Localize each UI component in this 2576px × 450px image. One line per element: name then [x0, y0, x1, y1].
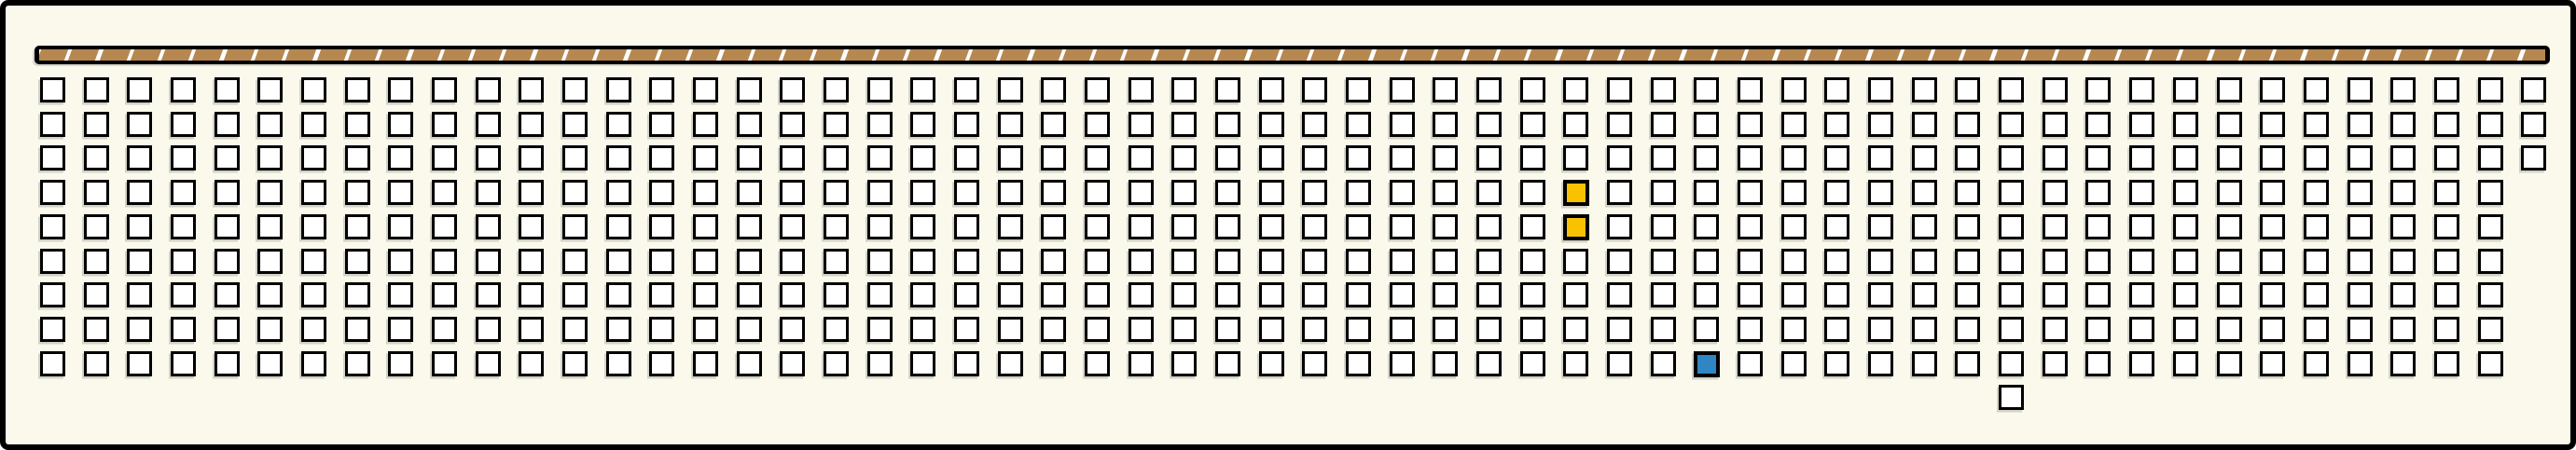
grid-cell [1259, 77, 1284, 102]
grid-cell [84, 282, 109, 307]
grid-cell [215, 317, 240, 342]
grid-cell [2434, 180, 2459, 205]
grid-cell [257, 112, 283, 137]
grid-cell [1041, 112, 1066, 137]
bar-slat [1590, 49, 1621, 61]
grid-cell [1390, 77, 1415, 102]
grid-cell [1738, 112, 1763, 137]
grid-cell [693, 249, 718, 274]
grid-cell [562, 249, 588, 274]
grid-cell [1563, 282, 1588, 307]
grid-cell [737, 351, 762, 376]
board [0, 0, 2576, 450]
grid-cell [1781, 77, 1807, 102]
grid-cell [1041, 282, 1066, 307]
grid-cell [301, 180, 326, 205]
grid-cell [388, 77, 413, 102]
bar-slat [596, 49, 627, 61]
grid-cell [257, 249, 283, 274]
grid-cell [1085, 180, 1110, 205]
grid-cell [1129, 214, 1154, 239]
grid-cell [562, 214, 588, 239]
bar-slat [224, 49, 255, 61]
grid-cell [215, 214, 240, 239]
grid-cell [432, 77, 457, 102]
bar-slat [1217, 49, 1248, 61]
grid-cell [910, 180, 935, 205]
bar-slat [1124, 49, 1155, 61]
grid-cell [2173, 351, 2198, 376]
grid-cell [1781, 214, 1807, 239]
grid-cell [562, 282, 588, 307]
bar-slat [1807, 49, 1838, 61]
grid-cell [1868, 214, 1893, 239]
grid-cell [84, 180, 109, 205]
grid-cell [2173, 112, 2198, 137]
grid-cell [1259, 282, 1284, 307]
grid-cell [998, 77, 1023, 102]
grid-cell [1215, 145, 1240, 170]
grid-cell [1085, 77, 1110, 102]
grid-cell [301, 145, 326, 170]
bar-slat [2211, 49, 2242, 61]
grid-cell [2304, 180, 2329, 205]
grid-cell [2478, 145, 2503, 170]
grid-cell [1563, 112, 1588, 137]
grid-cell [998, 180, 1023, 205]
grid-cell [867, 249, 893, 274]
grid-cell [1433, 317, 1458, 342]
grid-cell [84, 351, 109, 376]
bar-slat [2273, 49, 2304, 61]
grid-cell [40, 317, 65, 342]
grid-cell [2390, 351, 2416, 376]
grid-cell [345, 180, 370, 205]
grid-cell [1215, 77, 1240, 102]
grid-cell [737, 282, 762, 307]
grid-cell [954, 282, 979, 307]
grid-cell [1171, 317, 1197, 342]
grid-cell [1824, 249, 1849, 274]
bar-slat [2490, 49, 2521, 61]
grid-cell [1607, 145, 1632, 170]
grid-cell [2434, 351, 2459, 376]
bar-slat [2397, 49, 2428, 61]
grid-cell [301, 77, 326, 102]
bar-slat [565, 49, 596, 61]
grid-cell [215, 112, 240, 137]
grid-cell [2173, 77, 2198, 102]
grid-cell [2043, 351, 2068, 376]
bar-slat [1745, 49, 1776, 61]
grid-cell [40, 77, 65, 102]
grid-cell [1476, 317, 1502, 342]
grid-cell [2173, 145, 2198, 170]
grid-cell [824, 77, 849, 102]
grid-cell [1607, 317, 1632, 342]
grid-cell [1346, 180, 1371, 205]
grid-cell [1955, 77, 1980, 102]
grid-cell [476, 145, 501, 170]
grid-cell [1433, 249, 1458, 274]
grid-cell [1476, 282, 1502, 307]
grid-cell [780, 249, 805, 274]
grid-cell [519, 317, 544, 342]
grid-cell [1563, 249, 1588, 274]
grid-cell [2304, 77, 2329, 102]
grid-cell [998, 112, 1023, 137]
grid-cell [998, 351, 1023, 376]
grid-cell-yellow [1563, 180, 1589, 206]
bar-slat [2522, 49, 2545, 61]
grid-cell [1085, 317, 1110, 342]
grid-cell [1607, 77, 1632, 102]
grid-cell [1651, 282, 1676, 307]
bar-slat [658, 49, 689, 61]
grid-cell [301, 317, 326, 342]
grid-cell [1302, 282, 1327, 307]
grid-cell [301, 249, 326, 274]
grid-cell [737, 180, 762, 205]
grid-cell [1041, 317, 1066, 342]
grid-cell [40, 214, 65, 239]
grid-cell [867, 112, 893, 137]
grid-cell [1346, 282, 1371, 307]
grid-cell [127, 112, 152, 137]
bar-slat [192, 49, 223, 61]
grid-cell [84, 77, 109, 102]
grid-cell [1694, 214, 1719, 239]
grid-cell [257, 77, 283, 102]
grid-cell [2304, 112, 2329, 137]
grid-cell [954, 77, 979, 102]
grid-cell [301, 112, 326, 137]
grid-cell [562, 77, 588, 102]
grid-cell [1346, 214, 1371, 239]
bar-slat [503, 49, 533, 61]
grid-cell [1390, 351, 1415, 376]
grid-cell [954, 249, 979, 274]
grid-cell [1476, 77, 1502, 102]
grid-cell [1215, 112, 1240, 137]
bar-slat [1156, 49, 1186, 61]
grid-cell [1215, 249, 1240, 274]
grid-cell [2129, 351, 2154, 376]
grid-cell [127, 282, 152, 307]
grid-cell [2173, 249, 2198, 274]
grid-cell [1129, 112, 1154, 137]
grid-cell [910, 214, 935, 239]
grid-cell [1129, 77, 1154, 102]
bar-slat [2118, 49, 2149, 61]
bar-slat [1714, 49, 1745, 61]
grid-cell [2217, 145, 2242, 170]
grid-cell [388, 214, 413, 239]
grid-cell [171, 112, 196, 137]
grid-cell [1955, 214, 1980, 239]
grid-cell [84, 145, 109, 170]
grid-cell [432, 351, 457, 376]
grid-cell [2521, 77, 2546, 102]
grid-cell [519, 249, 544, 274]
grid-cell-blue [1694, 351, 1720, 377]
slat-band [39, 49, 2545, 61]
grid-cell [1651, 214, 1676, 239]
grid-cell [910, 112, 935, 137]
bar-slat [1776, 49, 1807, 61]
grid-cell [345, 145, 370, 170]
grid-cell [1520, 180, 1545, 205]
bar-slat [1497, 49, 1528, 61]
grid-cell [1346, 145, 1371, 170]
grid-cell [1607, 282, 1632, 307]
grid-cell [519, 214, 544, 239]
grid-cell [649, 145, 674, 170]
grid-cell [1824, 351, 1849, 376]
grid-cell [649, 282, 674, 307]
grid-cell [1999, 249, 2024, 274]
grid-cell [1041, 214, 1066, 239]
grid-cell [1563, 77, 1588, 102]
grid-cell [2347, 249, 2373, 274]
grid-cell [476, 351, 501, 376]
grid-cell [1302, 249, 1327, 274]
bar-slat [937, 49, 968, 61]
grid-cell [84, 317, 109, 342]
grid-cell [345, 214, 370, 239]
grid-cell [1129, 351, 1154, 376]
grid-cell [1912, 249, 1937, 274]
bar-slat [2335, 49, 2366, 61]
grid-cell [1781, 282, 1807, 307]
grid-cell [127, 351, 152, 376]
bar-slat [1558, 49, 1589, 61]
grid-cell [2217, 351, 2242, 376]
grid-cell [1955, 112, 1980, 137]
grid-cell [171, 282, 196, 307]
grid-cell [1259, 249, 1284, 274]
grid-cell [1129, 249, 1154, 274]
grid-cell [2390, 282, 2416, 307]
bar-slat [1404, 49, 1434, 61]
grid-cell [1215, 282, 1240, 307]
grid-cell [2347, 180, 2373, 205]
grid-cell [1824, 180, 1849, 205]
bar-slat [1962, 49, 1993, 61]
grid-cell [257, 180, 283, 205]
grid-cell [1694, 317, 1719, 342]
grid-cell [1259, 145, 1284, 170]
grid-cell [2390, 180, 2416, 205]
grid-cell [780, 180, 805, 205]
bar-slat [1062, 49, 1093, 61]
grid-cell [2043, 317, 2068, 342]
grid-cell [1390, 145, 1415, 170]
grid-cell [2347, 351, 2373, 376]
grid-cell [2478, 77, 2503, 102]
grid-cell [780, 112, 805, 137]
bar-slat [2180, 49, 2210, 61]
grid-cell [1302, 180, 1327, 205]
bar-slat [99, 49, 130, 61]
grid-cell [1302, 145, 1327, 170]
grid-cell [2434, 249, 2459, 274]
grid-cell [257, 282, 283, 307]
grid-cell [1999, 351, 2024, 376]
grid-cell [1302, 351, 1327, 376]
grid-cell [2347, 112, 2373, 137]
grid-cell [432, 112, 457, 137]
grid-cell [1694, 145, 1719, 170]
grid-cell [388, 351, 413, 376]
grid-cell [2434, 214, 2459, 239]
grid-cell [1868, 282, 1893, 307]
grid-cell [1738, 282, 1763, 307]
grid-cell [2085, 317, 2111, 342]
grid-cell [2347, 214, 2373, 239]
grid-cell [301, 351, 326, 376]
grid-cell [2434, 317, 2459, 342]
grid-cell [693, 351, 718, 376]
grid-cell [2390, 112, 2416, 137]
bar-slat [348, 49, 379, 61]
bar-slat [782, 49, 813, 61]
grid-cell [954, 145, 979, 170]
bar-slat [1373, 49, 1404, 61]
grid-cell [562, 317, 588, 342]
grid-cell [2304, 351, 2329, 376]
grid-cell [693, 180, 718, 205]
grid-cell [2129, 282, 2154, 307]
grid-cell [606, 351, 631, 376]
grid-cell [693, 317, 718, 342]
grid-cell [1781, 317, 1807, 342]
grid-cell [649, 351, 674, 376]
grid-cell [127, 317, 152, 342]
grid-cell [2478, 249, 2503, 274]
grid-cell [1085, 249, 1110, 274]
grid-cell [693, 145, 718, 170]
grid-cell [476, 249, 501, 274]
grid-cell [1171, 249, 1197, 274]
grid-cell [1999, 77, 2024, 102]
grid-cell [1912, 351, 1937, 376]
grid-cell [2390, 145, 2416, 170]
grid-cell [2085, 214, 2111, 239]
grid-cell [40, 249, 65, 274]
grid-cell [1085, 145, 1110, 170]
grid-cell [257, 214, 283, 239]
grid-cell [1651, 112, 1676, 137]
grid-cell [1171, 145, 1197, 170]
grid-cell [171, 180, 196, 205]
grid-cell [171, 77, 196, 102]
grid-cell [1868, 249, 1893, 274]
grid-cell [1694, 249, 1719, 274]
grid-cell [2217, 214, 2242, 239]
grid-cell [1302, 77, 1327, 102]
bar-slat [39, 49, 68, 61]
grid-cell [2173, 282, 2198, 307]
grid-cell [2304, 145, 2329, 170]
grid-cell [737, 214, 762, 239]
grid-cell [1955, 145, 1980, 170]
grid-cell [606, 180, 631, 205]
grid-cell [780, 351, 805, 376]
grid-cell [2521, 145, 2546, 170]
grid-cell [1085, 282, 1110, 307]
grid-cell [1041, 249, 1066, 274]
grid-cell [1390, 214, 1415, 239]
grid-cell [1215, 180, 1240, 205]
bar-slat [534, 49, 565, 61]
grid-cell [1171, 282, 1197, 307]
grid-cell [562, 145, 588, 170]
grid-cell [1171, 180, 1197, 205]
grid-cell [2478, 214, 2503, 239]
grid-cell [2260, 351, 2285, 376]
bar-slat [627, 49, 658, 61]
bar-slat [1528, 49, 1558, 61]
grid-cell [693, 77, 718, 102]
grid-cell [388, 145, 413, 170]
grid-cell [998, 214, 1023, 239]
grid-cell [1476, 214, 1502, 239]
grid-cell [1520, 351, 1545, 376]
grid-cell [345, 317, 370, 342]
grid-cell [1781, 180, 1807, 205]
grid-cell [954, 180, 979, 205]
grid-cell [954, 112, 979, 137]
grid-cell [1215, 214, 1240, 239]
grid-cell [432, 317, 457, 342]
grid-cell [1781, 249, 1807, 274]
grid-cell [1738, 180, 1763, 205]
grid-cell [649, 249, 674, 274]
bar-slat [1465, 49, 1496, 61]
grid-cell [215, 145, 240, 170]
grid-cell [1259, 214, 1284, 239]
grid-cell [824, 112, 849, 137]
grid-cell [2478, 112, 2503, 137]
grid-cell [1433, 180, 1458, 205]
grid-cell [2478, 282, 2503, 307]
bar-slat [1280, 49, 1310, 61]
grid-cell [867, 317, 893, 342]
grid-cell [1999, 214, 2024, 239]
grid-cell [1955, 249, 1980, 274]
grid-cell [1041, 351, 1066, 376]
grid-cell [649, 214, 674, 239]
grid-cell [2129, 249, 2154, 274]
grid-cell [1390, 317, 1415, 342]
grid-cell [1215, 351, 1240, 376]
grid-cell [867, 282, 893, 307]
grid-cell [1390, 282, 1415, 307]
grid-cell [432, 145, 457, 170]
grid-cell [737, 145, 762, 170]
grid-cell [1520, 249, 1545, 274]
grid-cell [1433, 145, 1458, 170]
grid-cell [2129, 145, 2154, 170]
grid-cell [2304, 282, 2329, 307]
grid-cell [2217, 282, 2242, 307]
grid-cell [1563, 317, 1588, 342]
grid-cell [2260, 77, 2285, 102]
grid-cell [388, 180, 413, 205]
grid-cell [1085, 112, 1110, 137]
bar-slat [1186, 49, 1217, 61]
